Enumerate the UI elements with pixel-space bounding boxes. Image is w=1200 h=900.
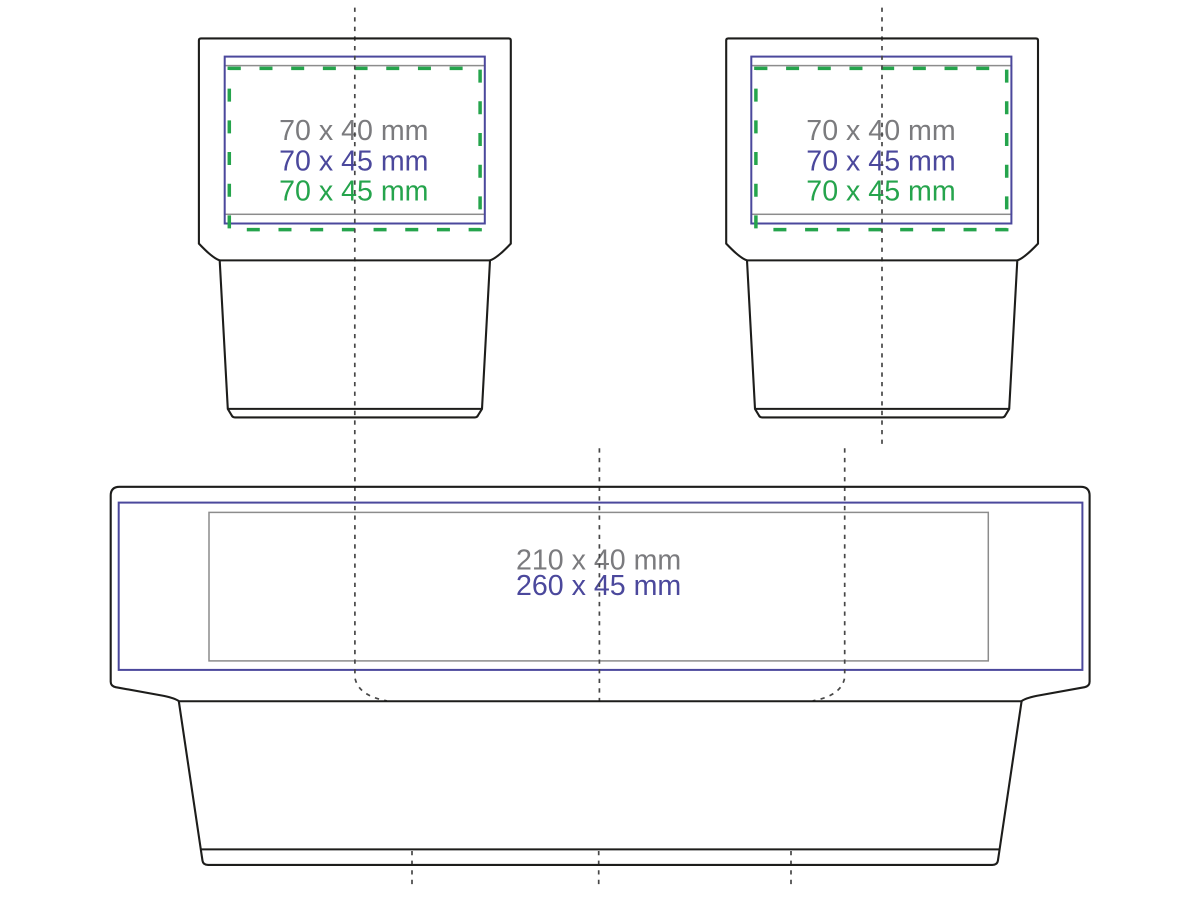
svg-text:70 x 45 mm: 70 x 45 mm [806,176,955,208]
svg-text:70 x 40 mm: 70 x 40 mm [279,115,428,147]
svg-text:70 x 45 mm: 70 x 45 mm [279,145,428,177]
svg-text:70 x 45 mm: 70 x 45 mm [279,176,428,208]
svg-text:70 x 45 mm: 70 x 45 mm [806,145,955,177]
svg-text:70 x 40 mm: 70 x 40 mm [806,115,955,147]
